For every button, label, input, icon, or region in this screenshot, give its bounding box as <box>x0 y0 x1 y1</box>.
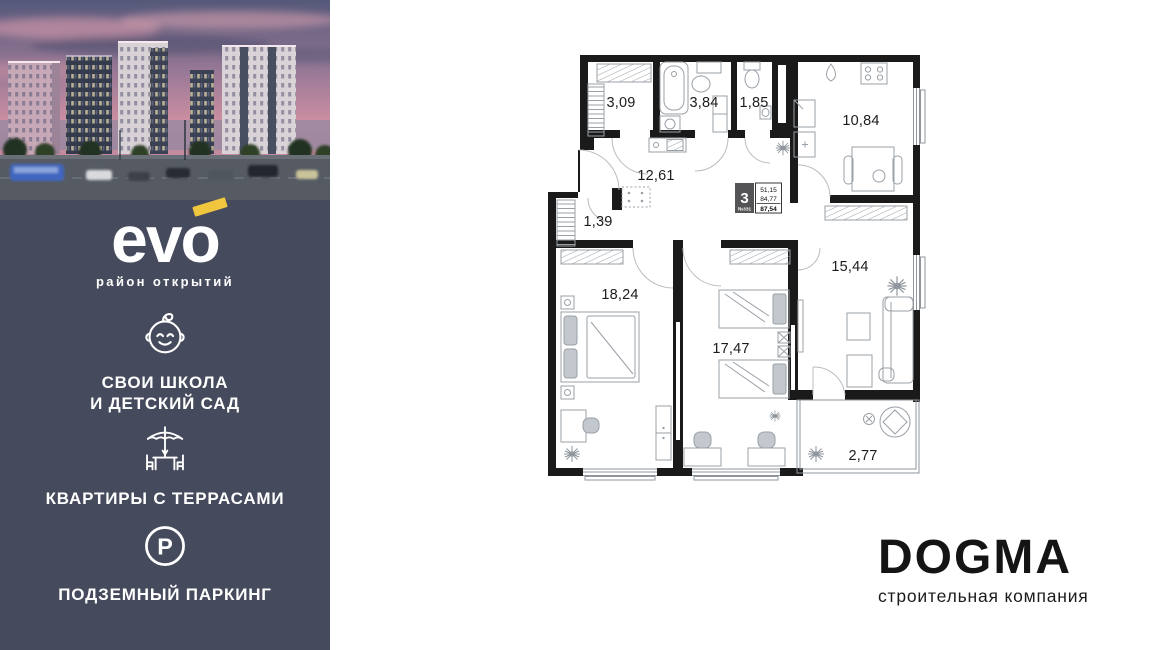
complex-photo <box>0 0 330 200</box>
room-label-living: 15,44 <box>831 259 868 275</box>
evo-tagline: район открытий <box>0 274 330 289</box>
floor-plan: 3,09 3,84 1,85 10,84 12,61 1,39 18,24 17… <box>545 50 940 490</box>
room-label-wardrobe: 3,09 <box>606 95 635 111</box>
room-label-bathroom: 3,84 <box>689 95 718 111</box>
room-label-closet: 1,39 <box>583 214 612 230</box>
room-label-kitchen: 10,84 <box>842 113 879 129</box>
feature-school: СВОИ ШКОЛА И ДЕТСКИЙ САД <box>0 306 330 414</box>
room-labels: 3,09 3,84 1,85 10,84 12,61 1,39 18,24 17… <box>583 95 879 464</box>
feature-school-label: СВОИ ШКОЛА И ДЕТСКИЙ САД <box>0 373 330 414</box>
unit-living-area: 51,15 <box>760 187 777 194</box>
unit-rooms-count: 3 <box>740 190 748 207</box>
room-label-terrace: 2,77 <box>848 448 877 464</box>
unit-number: №331 <box>738 207 752 213</box>
kids-room-furniture <box>684 290 790 466</box>
baby-icon <box>139 306 191 358</box>
room-label-kids-room: 17,47 <box>712 341 749 357</box>
cityscape-render <box>0 0 330 200</box>
bedroom-furniture <box>561 296 671 462</box>
living-room-furniture <box>798 276 913 387</box>
room-label-wc: 1,85 <box>739 95 768 111</box>
flyer: evo район открытий СВОИ ШКОЛА И ДЕТСКИЙ … <box>0 0 1151 650</box>
feature-parking: P ПОДЗЕМНЫЙ ПАРКИНГ <box>0 524 330 606</box>
developer-logo: DOGMA строительная компания <box>878 534 1138 607</box>
room-label-hallway: 12,61 <box>637 168 674 184</box>
room-label-bedroom: 18,24 <box>601 287 638 303</box>
terrace-icon <box>140 424 190 476</box>
evo-logo: evo район открытий <box>0 206 330 289</box>
sidebar: evo район открытий СВОИ ШКОЛА И ДЕТСКИЙ … <box>0 0 330 650</box>
developer-subtitle: строительная компания <box>878 586 1138 607</box>
developer-name: DOGMA <box>878 534 1138 582</box>
parking-icon: P <box>143 524 187 568</box>
feature-terraces-label: КВАРТИРЫ С ТЕРРАСАМИ <box>0 489 330 510</box>
unit-area-with-terrace: 87,54 <box>760 206 777 213</box>
unit-total-area: 84,77 <box>760 196 777 203</box>
feature-parking-label: ПОДЗЕМНЫЙ ПАРКИНГ <box>0 585 330 606</box>
svg-text:P: P <box>157 533 173 559</box>
feature-terraces: КВАРТИРЫ С ТЕРРАСАМИ <box>0 424 330 510</box>
unit-info-box: 3 №331 51,15 84,77 87,54 <box>735 183 782 213</box>
